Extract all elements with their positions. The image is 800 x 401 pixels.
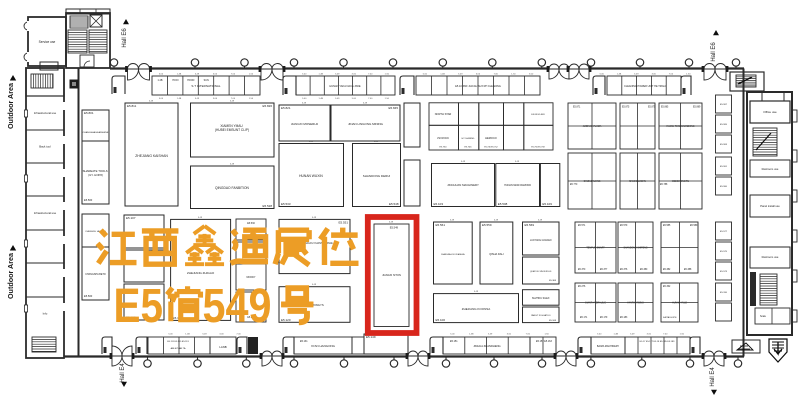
svg-text:E5.875: E5.875 <box>622 107 630 109</box>
svg-text:E5.362: E5.362 <box>663 286 671 288</box>
svg-text:E5.276: E5.276 <box>578 286 586 288</box>
svg-text:1.4B: 1.4B <box>319 98 324 100</box>
svg-text:E5.549: E5.549 <box>390 226 399 230</box>
svg-text:E5.770: E5.770 <box>570 184 578 186</box>
svg-text:E5.595: E5.595 <box>720 124 728 126</box>
svg-text:QUATIOU SINODRILLS: QUATIOU SINODRILLS <box>530 270 552 273</box>
svg-text:E5.131: E5.131 <box>300 340 308 343</box>
svg-text:Service use: Service use <box>39 40 56 44</box>
svg-text:QISHA DALI: QISHA DALI <box>489 252 504 256</box>
svg-text:HUNAN YULE: HUNAN YULE <box>672 302 687 305</box>
svg-text:E5.889: E5.889 <box>693 107 701 109</box>
svg-text:ZHEJIANG KOONSA: ZHEJIANG KOONSA <box>462 307 491 311</box>
svg-text:SHIJIAZHUANG: SHIJIAZHUANG <box>584 180 601 183</box>
svg-text:E5.561: E5.561 <box>436 223 446 227</box>
svg-text:1.4B: 1.4B <box>469 334 474 336</box>
svg-text:E5.168: E5.168 <box>549 320 557 322</box>
svg-text:Hall E6: Hall E6 <box>122 28 128 48</box>
svg-text:E5.380: E5.380 <box>640 269 648 271</box>
svg-text:E5.573: E5.573 <box>720 271 728 273</box>
svg-text:Panel install use: Panel install use <box>760 204 780 208</box>
svg-text:SUZHOU SILEX: SUZHOU SILEX <box>532 297 550 300</box>
svg-text:E5.746: E5.746 <box>465 147 473 149</box>
svg-text:JSI ROCK: JSI ROCK <box>437 136 449 140</box>
svg-text:Office use: Office use <box>763 110 777 114</box>
svg-text:E5.801: E5.801 <box>84 111 94 115</box>
svg-text:JINHUA ZHANDHENG: JINHUA ZHANDHENG <box>473 344 500 348</box>
svg-text:YANTIN YIBING: YANTIN YIBING <box>627 302 644 305</box>
svg-text:E5.575: E5.575 <box>720 251 728 253</box>
svg-text:LANB: LANB <box>219 345 226 349</box>
svg-text:1.4B: 1.4B <box>440 74 445 76</box>
svg-text:E5.376: E5.376 <box>620 269 628 271</box>
svg-text:E5.533: E5.533 <box>281 202 291 206</box>
svg-text:Restroom use: Restroom use <box>762 167 779 171</box>
svg-text:Scale: Scale <box>760 315 767 318</box>
svg-text:JIADHAU YUAMA: JIADHAU YUAMA <box>583 125 602 128</box>
svg-text:E5.500: E5.500 <box>84 294 93 298</box>
svg-text:XI'AN HANGONG: XI'AN HANGONG <box>311 344 336 348</box>
svg-text:LUOYANG GOLDEN: LUOYANG GOLDEN <box>530 239 552 242</box>
svg-text:E5.111 E5.115 E5.119: E5.111 E5.115 E5.119 <box>167 341 189 343</box>
svg-text:E5.388: E5.388 <box>684 269 692 271</box>
svg-text:HUJAN TONGSHANDONG: HUJAN TONGSHANDONG <box>666 125 694 128</box>
svg-text:1.4B: 1.4B <box>617 74 622 76</box>
svg-text:E5.100: E5.100 <box>436 318 446 322</box>
svg-text:HOOD: HOOD <box>187 79 194 82</box>
svg-text:SHANDONG SHIFENG: SHANDONG SHIFENG <box>623 247 647 250</box>
svg-text:1.4B: 1.4B <box>614 334 619 336</box>
svg-text:SHUOGUJICHN: SHUOGUJICHN <box>629 181 646 183</box>
svg-text:E5.368: E5.368 <box>549 280 557 282</box>
svg-text:HOOI: HOOI <box>172 79 178 82</box>
svg-text:E5.593: E5.593 <box>720 144 728 146</box>
svg-text:E5.875: E5.875 <box>648 107 656 109</box>
svg-text:WENDYONGTAI: WENDYONGTAI <box>672 180 690 183</box>
svg-text:E5.17 E5.177 E5.18 E5.185 E5.1: E5.17 E5.177 E5.18 E5.185 E5.189 <box>640 341 675 343</box>
svg-text:HUNAN NEW DIAMOND: HUNAN NEW DIAMOND <box>504 184 531 187</box>
svg-text:1.4B: 1.4B <box>177 98 182 100</box>
svg-text:1.4B: 1.4B <box>158 79 163 82</box>
svg-text:Infrastructural use: Infrastructural use <box>34 211 57 215</box>
svg-text:MOODY: MOODY <box>246 276 255 279</box>
svg-text:JINCHUAN MACHINERY: JINCHUAN MACHINERY <box>447 183 479 187</box>
svg-text:Hall E6: Hall E6 <box>711 42 717 62</box>
svg-text:E5.571: E5.571 <box>578 225 586 227</box>
svg-text:E5.821: E5.821 <box>281 106 291 110</box>
svg-text:E5.151: E5.151 <box>450 340 458 343</box>
svg-text:E5.103: E5.103 <box>434 202 444 206</box>
svg-text:E5.190: E5.190 <box>720 292 728 294</box>
svg-text:E5.377: E5.377 <box>600 269 608 271</box>
svg-text:HUNAN WUXIN: HUNAN WUXIN <box>299 174 323 178</box>
svg-text:ZHEJIANG KAISHAN: ZHEJIANG KAISHAN <box>135 154 168 158</box>
svg-text:E5.811: E5.811 <box>127 104 137 108</box>
svg-text:Outdoor Area: Outdoor Area <box>6 252 15 299</box>
svg-text:E5.370: E5.370 <box>578 269 586 271</box>
svg-text:E5.885: E5.885 <box>661 107 669 109</box>
svg-text:E5.579: E5.579 <box>620 225 628 227</box>
svg-text:E5.871: E5.871 <box>573 107 581 109</box>
svg-text:GIANT HYDRAULIC: GIANT HYDRAULIC <box>585 302 606 305</box>
svg-text:E5.559: E5.559 <box>482 223 492 227</box>
svg-text:E5.107: E5.107 <box>126 216 136 220</box>
svg-text:KAITAI HOPE: KAITAI HOPE <box>663 316 677 319</box>
svg-text:Hall E4: Hall E4 <box>710 367 716 387</box>
svg-text:E5.85 E5.869: E5.85 E5.869 <box>531 114 545 116</box>
svg-text:E5.120: E5.120 <box>281 318 291 322</box>
svg-text:TEMPUS SMART: TEMPUS SMART <box>586 247 605 250</box>
svg-text:JIANGXI MOSERLD: JIANGXI MOSERLD <box>291 122 319 126</box>
svg-text:E5.382: E5.382 <box>663 269 671 271</box>
svg-text:E5.589: E5.589 <box>690 225 698 227</box>
svg-text:CHANGSHA HEANSHINE: CHANGSHA HEANSHINE <box>83 131 109 134</box>
svg-text:E5.530: E5.530 <box>247 222 255 225</box>
svg-text:E5.591: E5.591 <box>720 166 728 168</box>
svg-text:E5.826: E5.826 <box>262 104 272 108</box>
svg-text:E5.597: E5.597 <box>720 104 728 106</box>
svg-text:ZHEJIANG ZHIGAO: ZHEJIANG ZHIGAO <box>187 271 215 275</box>
svg-text:QINGDAO FANBITION: QINGDAO FANBITION <box>215 186 250 190</box>
svg-text:CHANGSHA BETO: CHANGSHA BETO <box>85 273 106 276</box>
svg-text:Infrastructural use: Infrastructural use <box>34 111 57 115</box>
svg-text:E5.845: E5.845 <box>388 106 398 110</box>
svg-text:E5.179: E5.179 <box>600 317 608 319</box>
svg-text:E5.756 E5.758: E5.756 E5.758 <box>531 147 545 149</box>
svg-text:E5.109: E5.109 <box>542 202 552 206</box>
svg-text:JIANGXI SITON: JIANGXI SITON <box>382 273 401 277</box>
svg-text:E5.528: E5.528 <box>262 204 272 208</box>
svg-text:Hall E4: Hall E4 <box>120 363 126 383</box>
svg-text:E5.740 E5.752: E5.740 E5.752 <box>484 147 498 149</box>
svg-text:HY SHINING: HY SHINING <box>462 138 475 140</box>
svg-text:E5.171: E5.171 <box>580 317 588 319</box>
svg-text:E5.10 JINF JIACAU AUX RH CLEAN: E5.10 JINF JIACAU AUX RH CLEANING <box>455 85 501 88</box>
svg-text:Info: Info <box>43 312 48 316</box>
svg-text:E5.183: E5.183 <box>620 317 628 319</box>
svg-text:E5.788: E5.788 <box>660 184 668 186</box>
svg-text:YANGT XI HUATUO: YANGT XI HUATUO <box>531 314 551 317</box>
svg-text:NORTH STAR: NORTH STAR <box>435 112 452 116</box>
svg-text:SUN: SUN <box>204 79 209 82</box>
svg-text:E5.585: E5.585 <box>663 225 671 227</box>
svg-text:E5.157 E5.163: E5.157 E5.163 <box>536 340 552 343</box>
svg-text:E5.569: E5.569 <box>525 223 535 227</box>
svg-text:BAIMA MACHINERY: BAIMA MACHINERY <box>597 345 620 348</box>
svg-text:Outdoor Area: Outdoor Area <box>6 82 15 129</box>
svg-text:E5.577: E5.577 <box>720 231 728 233</box>
svg-text:E5: E5 <box>114 280 164 333</box>
svg-text:E5.500: E5.500 <box>84 198 93 202</box>
svg-text:Back tool: Back tool <box>39 145 51 149</box>
svg-text:E5.551: E5.551 <box>338 221 348 225</box>
svg-text:CLEANING POWER UNIT HE TRIGA: CLEANING POWER UNIT HE TRIGA <box>624 85 666 88</box>
svg-text:549: 549 <box>203 280 272 333</box>
svg-text:E5.508: E5.508 <box>498 202 508 206</box>
svg-text:Restroom use: Restroom use <box>762 255 779 259</box>
svg-text:1.4B: 1.4B <box>185 334 190 336</box>
svg-text:1.4B: 1.4B <box>177 74 182 76</box>
svg-text:JINAN LINGONG MINING: JINAN LINGONG MINING <box>348 122 384 126</box>
svg-text:S.T INTERNATIONAL: S.T INTERNATIONAL <box>191 84 221 88</box>
svg-text:ABLEYUAN TA: ABLEYUAN TA <box>171 347 186 350</box>
svg-text:E5.590: E5.590 <box>720 186 728 188</box>
svg-text:HUNAN YAKA NACA JINIE: HUNAN YAKA NACA JINIE <box>329 84 361 88</box>
svg-text:1.4B: 1.4B <box>319 74 324 76</box>
svg-text:HEMOCO: HEMOCO <box>485 136 497 140</box>
svg-text:E5.548: E5.548 <box>389 202 399 206</box>
svg-text:ZHANGJIAGOU XUANHUA: ZHANGJIAGOU XUANHUA <box>441 253 465 256</box>
svg-text:E5.750: E5.750 <box>440 147 448 149</box>
svg-text:SHANDONG DERUI: SHANDONG DERUI <box>363 174 391 178</box>
